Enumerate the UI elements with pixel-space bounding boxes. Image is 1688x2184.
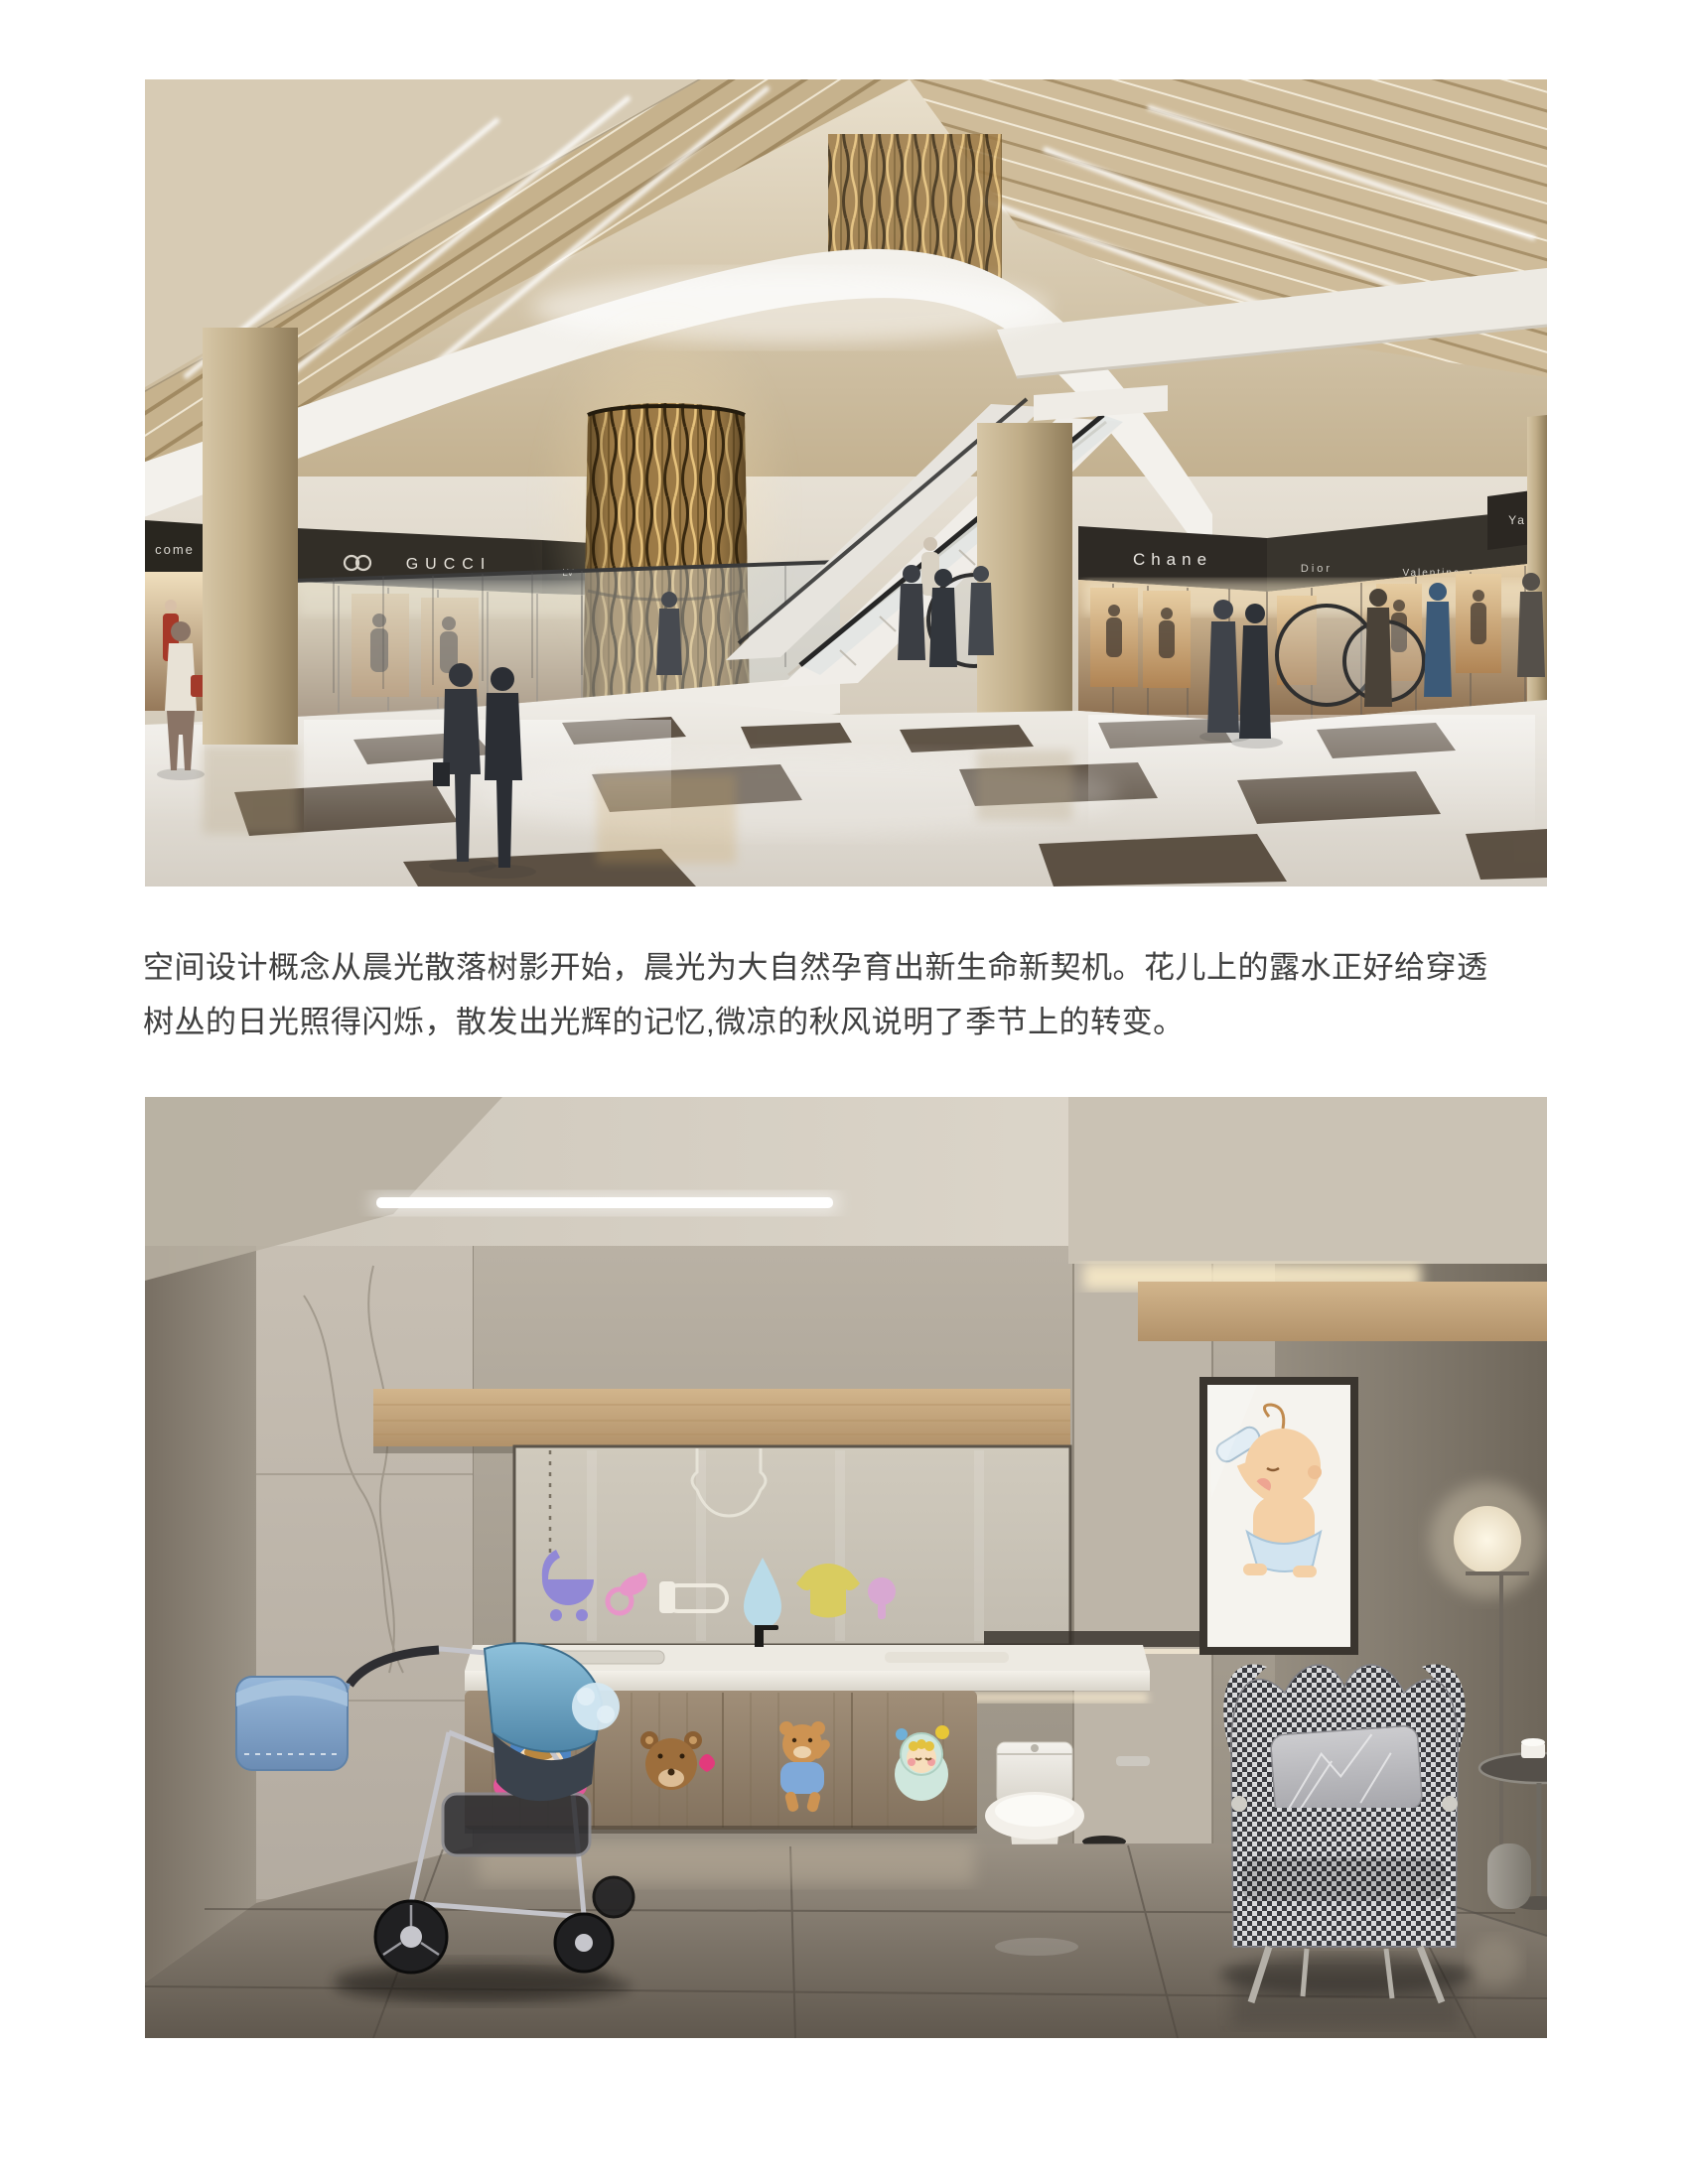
- paragraph-line-2: 树丛的日光照得闪烁，散发出光辉的记忆,微凉的秋风说明了季节上的转变。: [143, 995, 1551, 1049]
- diaper-bag: [236, 1677, 350, 1770]
- stroller-basket: [443, 1794, 590, 1855]
- seat-cushion: [1237, 1808, 1450, 1865]
- gucci-sign: GUCCI: [406, 556, 492, 573]
- mall-floor: [145, 699, 1547, 887]
- wood-trim-right: [1138, 1282, 1547, 1341]
- baby-care-room-rendering-image[interactable]: [145, 1097, 1547, 2038]
- tan-column-left: [203, 328, 298, 745]
- ceiling-light-strip: [376, 1197, 833, 1208]
- metal-vase: [1487, 1843, 1531, 1909]
- dior-sign: Dior: [1301, 563, 1333, 575]
- mall-atrium-rendering-image[interactable]: Chane Dior Valentine Ya: [145, 79, 1547, 887]
- ya-sign: Ya: [1508, 513, 1526, 527]
- mall-atrium-svg: Chane Dior Valentine Ya: [145, 79, 1547, 887]
- escalator-rider: [921, 537, 939, 596]
- frosted-glass-panel: [514, 1446, 1070, 1645]
- paragraph-line-1: 空间设计概念从晨光散落树影开始，晨光为大自然孕育出新生命新契机。花儿上的露水正好…: [143, 940, 1551, 995]
- article-page: Chane Dior Valentine Ya: [0, 0, 1688, 2184]
- tan-column-right: [977, 423, 1072, 751]
- baby-artwork-frame: [1203, 1381, 1354, 1651]
- lamp-globe: [1454, 1506, 1521, 1573]
- toilet-paper-holder: [1116, 1756, 1150, 1766]
- left-marble-wall: [256, 1224, 473, 1899]
- ceiling-bulkhead-right: [1068, 1097, 1547, 1264]
- baby-room-svg: [145, 1097, 1547, 2038]
- article-paragraph: 空间设计概念从晨光散落树影开始，晨光为大自然孕育出新生命新契机。花儿上的露水正好…: [143, 940, 1551, 1049]
- come-sign: come: [155, 542, 195, 557]
- baby-bunting-decal: [895, 1725, 949, 1801]
- wood-band: [373, 1389, 1070, 1446]
- chanel-sign: Chane: [1133, 550, 1212, 569]
- lumbar-pillow: [1270, 1725, 1422, 1819]
